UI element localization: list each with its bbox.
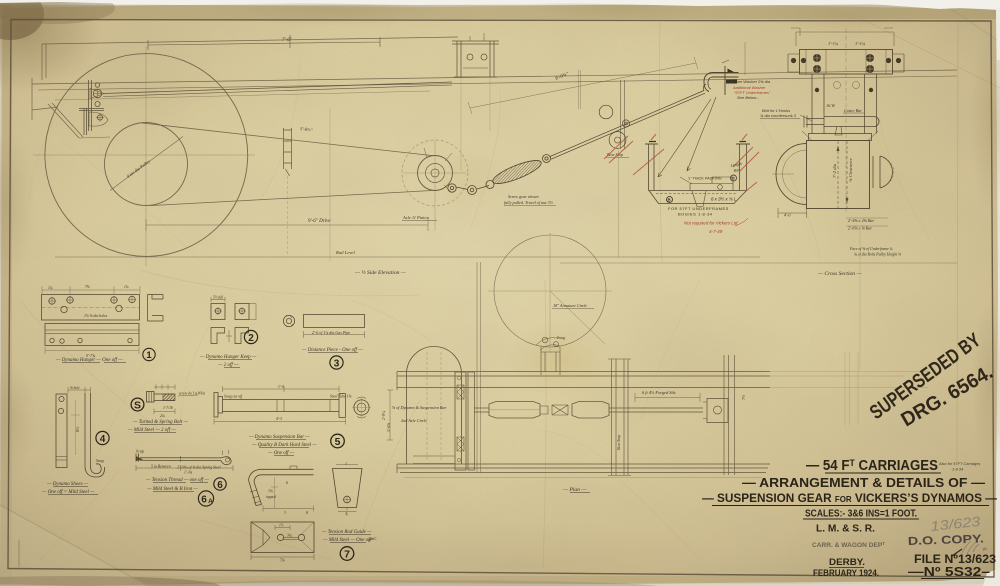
svg-text:3¾: 3¾	[287, 534, 292, 538]
svg-text:3: 3	[334, 358, 340, 369]
svg-text:1-8-34: 1-8-34	[952, 467, 964, 472]
svg-text:Rubber Washer 2⅝ dia: Rubber Washer 2⅝ dia	[729, 79, 771, 84]
svg-text:CARR. & WAGON DEPT: CARR. & WAGON DEPT	[812, 541, 885, 549]
svg-text:1'-3¾: 1'-3¾	[184, 471, 193, 475]
svg-text:60: 60	[731, 177, 735, 181]
svg-text:FEBRUARY 1924.: FEBRUARY 1924.	[813, 567, 879, 578]
svg-text:2'-6 of 1¼ dia Gas Pipe: 2'-6 of 1¼ dia Gas Pipe	[312, 330, 350, 335]
svg-text:⅞ of Dynamo & Suspension Bar: ⅞ of Dynamo & Suspension Bar	[392, 405, 447, 410]
svg-text:— 54 FT CARRIAGES: — 54 FT CARRIAGES	[806, 458, 938, 474]
svg-text:2'-0¼: 2'-0¼	[381, 411, 386, 420]
svg-text:A: A	[208, 498, 213, 505]
svg-text:7½: 7½	[741, 395, 746, 400]
svg-text:4'-3: 4'-3	[276, 417, 282, 421]
svg-text:1¾: 1¾	[124, 285, 129, 289]
svg-text:Face of ⅝ of Underframe ¾: Face of ⅝ of Underframe ¾	[849, 247, 893, 251]
svg-text:2'-6⅝ x ⅝ Bar: 2'-6⅝ x ⅝ Bar	[848, 226, 872, 231]
svg-text:7⅜: 7⅜	[280, 559, 285, 563]
svg-text:—Nº 5S32–: —Nº 5S32–	[908, 565, 990, 579]
svg-text:2'-4⅜ x 2⅝ Bar: 2'-4⅜ x 2⅝ Bar	[848, 218, 875, 223]
svg-text:Bow Stop: Bow Stop	[616, 435, 621, 450]
svg-text:7⅜: 7⅜	[85, 285, 90, 289]
svg-text:FOR 57FT UNDERFRAMES: FOR 57FT UNDERFRAMES	[668, 206, 729, 211]
svg-text:⅜ tap: ⅜ tap	[136, 450, 144, 454]
svg-text:See Below...: See Below...	[737, 95, 759, 100]
svg-text:Cotter Bar: Cotter Bar	[844, 108, 862, 113]
svg-text:1½: 1½	[279, 524, 284, 528]
svg-text:7'-2 dia: 7'-2 dia	[832, 163, 837, 178]
svg-text:Also for 57FT Carriages: Also for 57FT Carriages	[938, 461, 980, 466]
svg-text:B: B	[668, 198, 671, 203]
svg-text:1'-5: 1'-5	[278, 385, 284, 389]
svg-text:6: 6	[217, 480, 223, 491]
svg-text:16.W.: 16.W.	[826, 103, 835, 108]
svg-text:tapped: tapped	[266, 495, 276, 499]
svg-text:1¾: 1¾	[48, 286, 53, 290]
svg-text:3: 3	[284, 511, 286, 515]
svg-text:5 in Between: 5 in Between	[151, 465, 171, 469]
svg-text:Screw gear shown: Screw gear shown	[508, 194, 539, 199]
svg-text:Axle 11 Pinion: Axle 11 Pinion	[402, 215, 430, 220]
svg-text:S: S	[134, 400, 141, 412]
svg-text:8: 8	[306, 511, 308, 515]
svg-text:— Plan —: — Plan —	[562, 487, 586, 493]
svg-text:2¾: 2¾	[160, 414, 165, 418]
svg-text:1-7/16: 1-7/16	[163, 406, 173, 410]
svg-text:3'-6⅞: 3'-6⅞	[386, 423, 391, 432]
svg-text:— ½ Side Elevation —: — ½ Side Elevation —	[354, 269, 406, 276]
svg-text:¾ dia countersunk 3: ¾ dia countersunk 3	[760, 113, 797, 118]
svg-text:BOGIES 1-8-34: BOGIES 1-8-34	[678, 212, 713, 217]
svg-text:fully pulled. Travel of nut 3½: fully pulled. Travel of nut 3½	[504, 200, 554, 205]
svg-text:1¾: 1¾	[268, 489, 273, 493]
svg-text:5½ full: 5½ full	[213, 296, 223, 300]
svg-text:Snug: Snug	[96, 459, 104, 463]
svg-text:2nd Axle Circle: 2nd Axle Circle	[401, 418, 427, 423]
svg-text:1: 1	[345, 462, 347, 466]
svg-text:5: 5	[335, 436, 341, 448]
svg-text:Snug cut off: Snug cut off	[224, 395, 243, 399]
svg-text:Steel Tube 1⅜: Steel Tube 1⅜	[330, 395, 352, 399]
svg-text:1'-1¼: 1'-1¼	[828, 41, 839, 46]
svg-text:4'-0: 4'-0	[784, 213, 791, 218]
svg-text:— ARRANGEMENT & DETAILS OF —: — ARRANGEMENT & DETAILS OF —	[742, 475, 985, 490]
svg-text:— Cross Section —: — Cross Section —	[817, 271, 861, 277]
svg-text:screw do 1¼ Whit: screw do 1¼ Whit	[179, 392, 206, 396]
svg-text:4-7-49: 4-7-49	[709, 229, 723, 234]
svg-text:7: 7	[344, 549, 350, 561]
svg-text:6 ft 4½ Forged Stls: 6 ft 4½ Forged Stls	[642, 390, 676, 395]
svg-text:4: 4	[100, 434, 106, 445]
svg-text:6: 6	[201, 495, 207, 506]
svg-text:2'-10¾ of ⅜ dia Spring Steel: 2'-10¾ of ⅜ dia Spring Steel	[177, 466, 221, 470]
svg-text:Not required for Vickers Ltd: Not required for Vickers Ltd	[684, 221, 738, 226]
svg-text:1'-1¼: 1'-1¼	[855, 41, 866, 46]
svg-text:1: 1	[146, 350, 152, 361]
svg-text:2: 2	[248, 333, 254, 344]
svg-text:⅜ hole: ⅜ hole	[70, 386, 80, 390]
svg-text:8 x 3½ x ⅜ L: 8 x 3½ x ⅜ L	[711, 197, 737, 202]
svg-text:Rail Level: Rail Level	[335, 250, 355, 255]
svg-text:Snug: Snug	[557, 335, 565, 340]
svg-text:¾ of dia Bolts Pulley Height ⅝: ¾ of dia Bolts Pulley Height ⅝	[854, 253, 901, 257]
svg-text:8½: 8½	[75, 427, 80, 432]
svg-text:18" Armature Circle: 18" Armature Circle	[553, 303, 587, 308]
svg-text:SCALES:- 3&6 INS=1 FOOT.: SCALES:- 3&6 INS=1 FOOT.	[805, 509, 917, 520]
svg-text:1⅛ ⅜ dia holes: 1⅛ ⅜ dia holes	[84, 314, 108, 318]
svg-text:⅝ Clearance: ⅝ Clearance	[848, 158, 853, 182]
svg-text:9'-6" Drive: 9'-6" Drive	[308, 219, 331, 224]
svg-text:L. M. & S. R.: L. M. & S. R.	[816, 523, 875, 535]
svg-text:3: 3	[345, 512, 347, 516]
svg-text:1" THICK PACKING: 1" THICK PACKING	[688, 177, 722, 181]
svg-text:6: 6	[286, 481, 288, 485]
svg-text:7'-6": 7'-6"	[282, 38, 293, 43]
